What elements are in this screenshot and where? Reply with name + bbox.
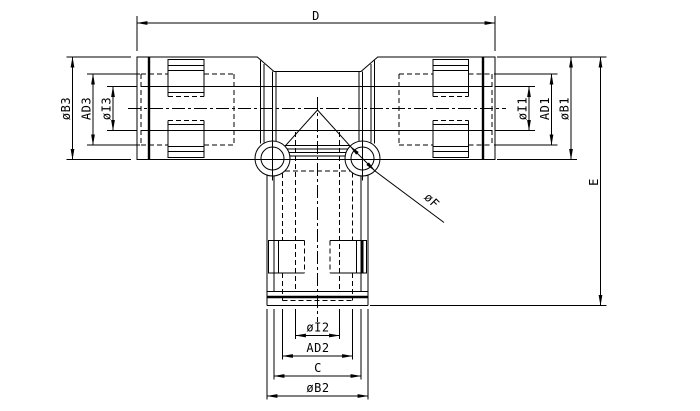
dim-label-ad2: AD2: [306, 341, 329, 355]
dimension-i1: øI1: [495, 87, 535, 131]
dimension-b1: øB1: [497, 57, 577, 160]
dim-label-ad3: AD3: [80, 97, 94, 120]
dim-label-e: E: [587, 178, 601, 186]
dim-label-ad1: AD1: [538, 97, 552, 120]
tee-fitting-drawing: D øB3 AD3 øI3 øI1 AD1 øB1 E øI2: [0, 0, 700, 411]
dim-label-b1: øB1: [558, 97, 572, 120]
dim-label-c: C: [314, 361, 322, 375]
dim-label-i3: øI3: [100, 97, 114, 120]
dim-label-b2: øB2: [306, 381, 329, 395]
tee-body: [128, 57, 506, 322]
dimension-f: øF: [350, 146, 444, 222]
dimension-b3: øB3: [59, 57, 131, 160]
run-hidden-bore: [141, 74, 492, 145]
dim-label-d: D: [312, 9, 320, 23]
drawing-canvas: D øB3 AD3 øI3 øI1 AD1 øB1 E øI2: [0, 0, 700, 411]
dim-label-i2: øI2: [306, 321, 329, 335]
dim-label-i1: øI1: [516, 97, 530, 120]
dimension-d: D: [137, 9, 495, 51]
dim-label-b3: øB3: [59, 97, 73, 120]
